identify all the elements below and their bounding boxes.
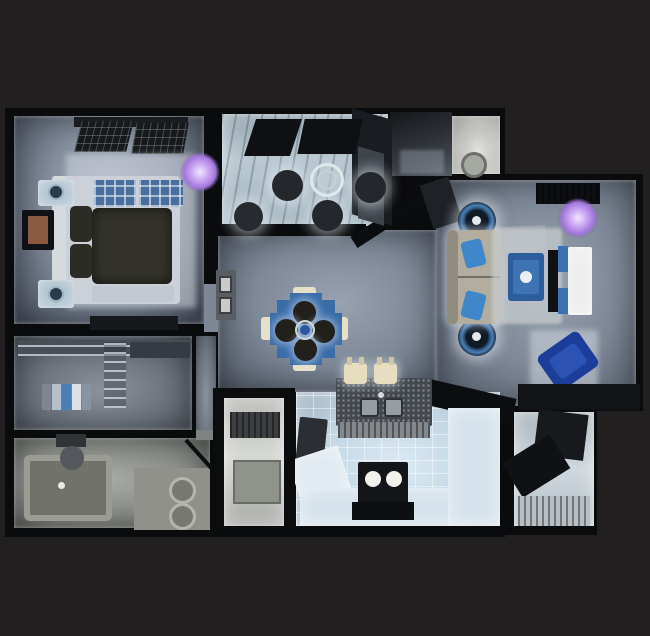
entry-floor-light [400, 150, 444, 174]
closet-item-3 [62, 384, 71, 410]
island-sink-right [384, 398, 403, 417]
hvac-vent [230, 412, 280, 438]
patio-window-2 [297, 119, 362, 154]
coffee-table-dish [520, 271, 532, 283]
bed-foot-blanket [92, 286, 174, 302]
dining-rug-corner-1 [277, 300, 291, 314]
dining-chair-south [294, 338, 317, 361]
closet-wire-rack [104, 342, 126, 408]
bedroom-dresser [90, 316, 178, 330]
patio-chair-3 [312, 200, 343, 231]
wall-vent-switch-1 [219, 276, 232, 293]
stove-burner-1 [365, 471, 381, 487]
patio-chair-2 [355, 172, 386, 203]
bedroom-plant [180, 152, 220, 192]
tv-panel [548, 250, 558, 312]
side-table-north-dot [472, 216, 481, 225]
nightstand-lamp-south [48, 286, 64, 302]
island-sink-left [360, 398, 379, 417]
media-console-white [568, 247, 592, 315]
bed-pillow-2 [70, 244, 92, 278]
stove-skirt [352, 502, 414, 520]
bar-stool-1-back-b [359, 357, 364, 365]
vanity-sink-1 [169, 477, 196, 504]
bedroom-closet-door-left [74, 121, 134, 152]
patio-chair-1 [272, 170, 303, 201]
bar-stool-1-back-a [347, 357, 352, 365]
bed-duvet [92, 208, 172, 284]
water-heater-box [233, 460, 281, 504]
media-shelf-blue-2 [558, 288, 568, 314]
floor-plan [0, 0, 650, 636]
kitchen-counter-right [448, 408, 500, 526]
dining-rug-corner-4 [321, 344, 335, 358]
sofa-back [447, 230, 458, 324]
bathtub-faucet [58, 482, 65, 489]
vanity-sink-2 [169, 503, 196, 530]
patio-table-inner [317, 170, 337, 190]
bedroom-closet-door-right [131, 123, 188, 154]
dining-table-center [300, 325, 310, 335]
bed-pillow-1 [70, 206, 92, 242]
closet-item-5 [82, 384, 91, 410]
closet-item-4 [72, 384, 81, 410]
stove-burner-2 [386, 471, 402, 487]
media-shelf-blue-1 [558, 246, 568, 272]
dining-chair-east [312, 320, 335, 343]
bar-stool-2-back-a [377, 357, 382, 365]
bar-stool-2 [374, 363, 397, 384]
closet-item-2 [52, 384, 61, 410]
wall-art-picture [28, 216, 48, 244]
patio-chair-4 [234, 202, 263, 231]
closet-corner-shelf [130, 342, 190, 358]
bed-plaid-blanket-right [139, 180, 183, 207]
bed-plaid-blanket-left [94, 180, 136, 207]
louvered-unit [518, 496, 590, 526]
island-faucet [378, 392, 384, 398]
water-heater [461, 152, 487, 178]
dining-rug-corner-2 [321, 300, 335, 314]
bathroom-door-opening [196, 430, 214, 440]
nightstand-lamp-north [48, 184, 64, 200]
kitchen-island-skirt [338, 422, 430, 438]
living-plant [558, 198, 598, 238]
bar-stool-1 [344, 363, 367, 384]
side-table-south-dot [472, 332, 481, 341]
wall-vent-switch-2 [219, 297, 232, 314]
toilet-bowl [60, 446, 84, 470]
closet-item-1 [42, 384, 51, 410]
bar-stool-2-back-b [389, 357, 394, 365]
dining-rug-corner-3 [277, 344, 291, 358]
living-credenza [518, 384, 640, 410]
